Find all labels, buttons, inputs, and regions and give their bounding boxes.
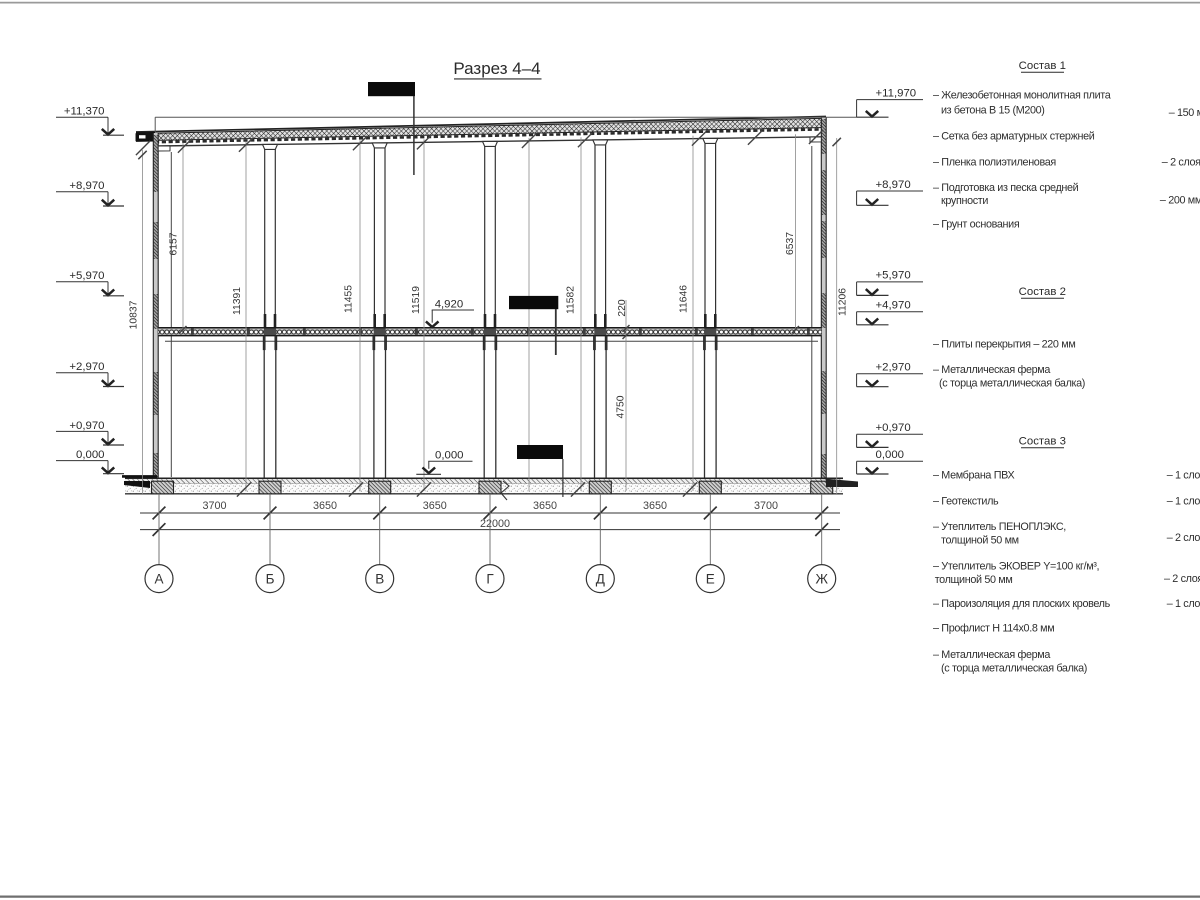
svg-text:(с торца металлическая балка): (с торца металлическая балка) <box>939 378 1085 390</box>
svg-text:– Пароизоляция для плоских кро: – Пароизоляция для плоских кровель <box>933 598 1111 610</box>
svg-text:– 1 слой: – 1 слой <box>1167 496 1200 508</box>
svg-text:22000: 22000 <box>480 518 510 530</box>
svg-text:10837: 10837 <box>129 300 140 329</box>
svg-text:крупности: крупности <box>941 195 988 207</box>
svg-text:Ж: Ж <box>815 571 828 586</box>
svg-text:– Утеплитель ЭКОВЕР Y=100 кг/м: – Утеплитель ЭКОВЕР Y=100 кг/м³, <box>933 561 1100 573</box>
svg-text:0,000: 0,000 <box>876 449 905 461</box>
svg-text:+0,970: +0,970 <box>69 420 104 432</box>
svg-text:4,920: 4,920 <box>435 298 464 310</box>
svg-text:3650: 3650 <box>423 500 447 512</box>
svg-text:– Мембрана ПВХ: – Мембрана ПВХ <box>933 470 1015 482</box>
svg-text:– Пленка полиэтиленовая: – Пленка полиэтиленовая <box>933 157 1056 169</box>
svg-text:3700: 3700 <box>754 500 778 512</box>
svg-text:+2,970: +2,970 <box>876 362 911 374</box>
svg-text:+0,970: +0,970 <box>876 422 911 434</box>
svg-text:Состав 3: Состав 3 <box>1019 436 1066 448</box>
svg-text:Разрез 4–4: Разрез 4–4 <box>453 59 540 78</box>
svg-text:– 200 мм: – 200 мм <box>1160 195 1200 207</box>
svg-text:В: В <box>375 571 384 586</box>
svg-text:Д: Д <box>596 571 605 586</box>
svg-text:– Плиты перекрытия – 220 мм: – Плиты перекрытия – 220 мм <box>933 339 1075 351</box>
svg-text:11455: 11455 <box>344 285 355 313</box>
svg-text:3650: 3650 <box>313 500 337 512</box>
svg-text:6537: 6537 <box>785 232 796 255</box>
svg-text:6157: 6157 <box>169 232 180 255</box>
svg-text:Б: Б <box>266 571 275 586</box>
svg-text:+5,970: +5,970 <box>876 270 911 282</box>
svg-text:11391: 11391 <box>232 287 243 315</box>
svg-text:+2,970: +2,970 <box>69 361 104 373</box>
svg-text:– Сетка без арматурных стержне: – Сетка без арматурных стержней <box>933 131 1095 143</box>
svg-text:– Утеплитель ПЕНОПЛЭКС,: – Утеплитель ПЕНОПЛЭКС, <box>933 521 1066 533</box>
svg-text:3700: 3700 <box>202 500 226 512</box>
svg-text:220: 220 <box>617 299 628 316</box>
svg-text:– 150 мм: – 150 мм <box>1169 107 1200 119</box>
svg-text:– 2 слоя: – 2 слоя <box>1167 532 1200 544</box>
svg-text:+4,970: +4,970 <box>876 300 911 312</box>
svg-text:3650: 3650 <box>533 500 557 512</box>
svg-text:– Металлическая ферма: – Металлическая ферма <box>933 364 1050 376</box>
svg-text:А: А <box>154 571 163 586</box>
svg-text:+11,970: +11,970 <box>876 87 917 99</box>
svg-text:+8,970: +8,970 <box>876 179 911 191</box>
svg-text:толщиной 50 мм: толщиной 50 мм <box>935 574 1013 586</box>
svg-text:Г: Г <box>486 571 494 586</box>
svg-text:11646: 11646 <box>679 285 690 313</box>
svg-text:0,000: 0,000 <box>76 449 105 461</box>
svg-text:+5,970: +5,970 <box>69 270 104 282</box>
svg-text:+11,370: +11,370 <box>64 106 105 118</box>
svg-text:– Грунт основания: – Грунт основания <box>933 219 1020 231</box>
svg-text:– 1 слой: – 1 слой <box>1167 598 1200 610</box>
svg-text:– Подготовка из песка средней: – Подготовка из песка средней <box>933 182 1079 194</box>
svg-text:Состав 2: Состав 2 <box>1019 286 1066 298</box>
svg-text:– 1 слой: – 1 слой <box>1167 470 1200 482</box>
svg-text:0,000: 0,000 <box>435 450 464 462</box>
svg-text:– Металлическая ферма: – Металлическая ферма <box>933 649 1050 661</box>
svg-text:– Железобетонная монолитная п: – Железобетонная монолитная плита <box>933 90 1111 102</box>
svg-text:3650: 3650 <box>643 500 667 512</box>
svg-text:из бетона В 15 (М200): из бетона В 15 (М200) <box>941 105 1045 117</box>
svg-text:11206: 11206 <box>838 288 849 316</box>
svg-text:– 2 слоя: – 2 слоя <box>1164 573 1200 585</box>
svg-text:Состав 1: Состав 1 <box>1019 60 1066 72</box>
svg-text:4750: 4750 <box>616 395 627 418</box>
svg-text:11582: 11582 <box>566 286 577 314</box>
svg-text:толщиной 50 мм: толщиной 50 мм <box>941 535 1019 547</box>
svg-text:– Профлист Н 114х0.8 мм: – Профлист Н 114х0.8 мм <box>933 623 1054 635</box>
svg-text:– Геотекстиль: – Геотекстиль <box>933 496 999 508</box>
svg-text:(с торца металлическая балка): (с торца металлическая балка) <box>941 663 1087 675</box>
svg-text:+8,970: +8,970 <box>69 180 104 192</box>
svg-text:Е: Е <box>706 571 715 586</box>
svg-text:– 2 слоя: – 2 слоя <box>1162 157 1200 169</box>
svg-text:11519: 11519 <box>411 286 422 314</box>
